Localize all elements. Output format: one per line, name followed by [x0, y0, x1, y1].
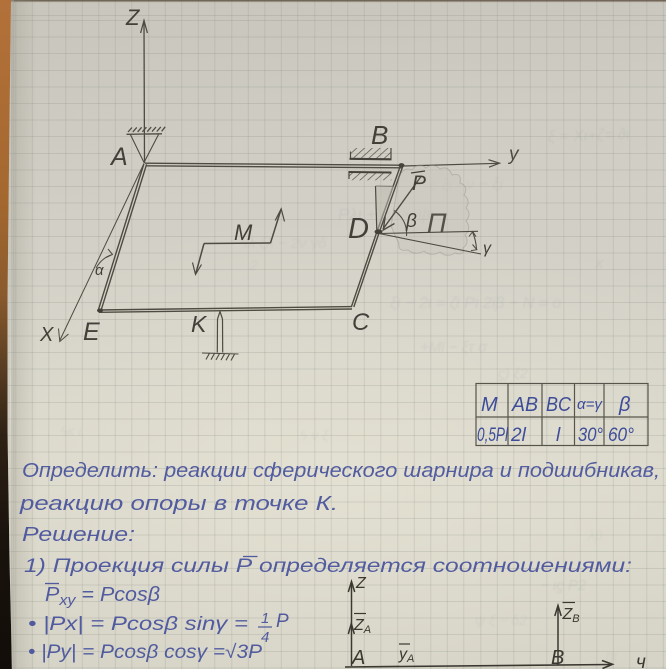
svg-text:y: y	[507, 144, 520, 165]
svg-text:BC: BC	[546, 394, 571, 416]
svg-text:ϟ ν ξ: ϟ ν ξ	[300, 427, 329, 443]
svg-text:γ: γ	[483, 240, 492, 257]
svg-text:ξι − 2ι = ζι Ρι 2ϊβ − Ν = ο: ξι − 2ι = ζι Ρι 2ϊβ − Ν = ο	[390, 295, 561, 312]
svg-text:4: 4	[261, 629, 269, 646]
svg-text:1) Проекция силы Р определ: 1) Проекция силы Р определяется соотноше…	[24, 556, 632, 577]
svg-text:AB: AB	[511, 394, 538, 416]
svg-text:ZB: ZB	[562, 606, 580, 625]
svg-text:κ: κ	[596, 255, 605, 272]
svg-text:Р: Р	[276, 611, 289, 632]
svg-text:α=γ: α=γ	[577, 396, 603, 413]
svg-text:• |Рx| = Рcosβ sinγ =: • |Рx| = Рcosβ sinγ =	[28, 614, 248, 635]
svg-text:ξ = Χι+ζ= ∂ι: ξ = Χι+ζ= ∂ι	[548, 126, 631, 146]
svg-text:P: P	[412, 172, 426, 195]
svg-text:30°: 30°	[578, 425, 603, 446]
svg-text:D: D	[348, 213, 369, 245]
svg-text:ηι: ηι	[606, 647, 617, 663]
svg-text:Рxy = Рcosβ: Рxy = Рcosβ	[45, 584, 160, 609]
svg-text:П: П	[427, 208, 447, 238]
svg-text:0,5Pl: 0,5Pl	[477, 425, 509, 446]
svg-text:A: A	[109, 143, 128, 171]
svg-text:2: 2	[249, 257, 258, 273]
svg-text:β: β	[405, 211, 417, 232]
svg-text:B: B	[371, 120, 388, 150]
svg-text:E: E	[83, 318, 100, 346]
svg-text:B: B	[551, 647, 564, 669]
svg-text:60°: 60°	[608, 425, 634, 446]
svg-text:X: X	[39, 324, 54, 346]
svg-text:β: β	[618, 394, 630, 416]
svg-text:Определить: реакции сферичес: Определить: реакции сферического шарнира…	[22, 460, 660, 482]
svg-text:− ιϛ Ρ2: − ιϛ Ρ2	[540, 577, 587, 594]
svg-text:• |Рy| = Рcosβ cosγ =√3Р: • |Рy| = Рcosβ cosγ =√3Р	[28, 642, 262, 663]
svg-text:Z: Z	[125, 5, 141, 30]
svg-text:ϛ) ξ2: ϛ) ξ2	[498, 365, 528, 381]
svg-text:реакцию опоры в точке К.: реакцию опоры в точке К.	[19, 493, 338, 515]
svg-text:Z: Z	[355, 575, 367, 592]
svg-text:C: C	[352, 309, 370, 336]
svg-text:ч: ч	[636, 652, 646, 669]
svg-text:ϟκ ι: ϟκ ι	[60, 423, 81, 439]
svg-text:α: α	[95, 262, 104, 279]
svg-text:l: l	[556, 425, 561, 446]
svg-text:1: 1	[261, 610, 269, 627]
svg-text:Решение:: Решение:	[22, 524, 135, 546]
svg-text:K: K	[191, 311, 208, 337]
svg-text:2l: 2l	[510, 425, 527, 446]
svg-text:A: A	[351, 647, 365, 669]
svg-text:ψ ξ − δ2: ψ ξ − δ2	[475, 612, 527, 628]
svg-text:+Μϊ − ξτ σ: +Μϊ − ξτ σ	[420, 339, 488, 356]
svg-text:уA: уA	[398, 646, 414, 665]
svg-text:λβ: λβ	[587, 527, 603, 543]
svg-text:ZA: ZA	[353, 617, 371, 636]
svg-text:M: M	[234, 220, 253, 245]
svg-text:M: M	[481, 394, 498, 416]
